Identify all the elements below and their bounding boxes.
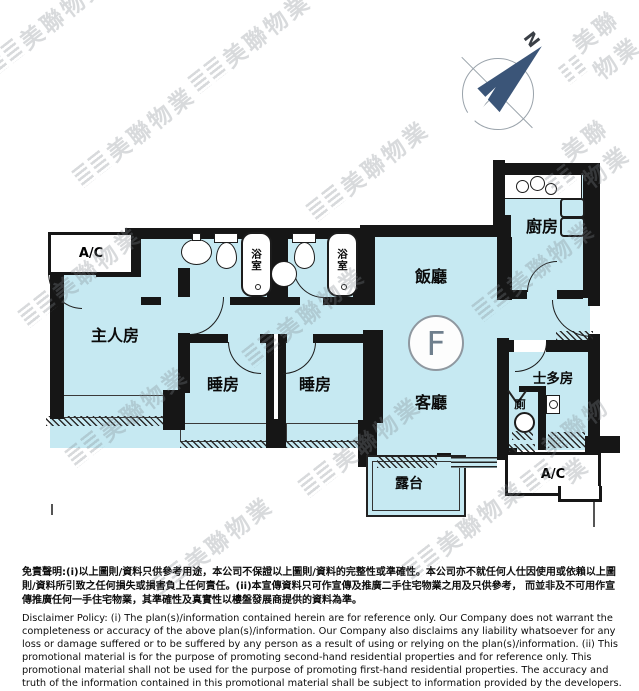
disclaimer-block: 免責聲明:(i)以上圖則/資料只供參考用途，本公司不保證以上圖則/資料的完整性或… [22,566,623,690]
toilet-window-hatch [509,444,535,452]
kitchen-appliance [560,198,585,218]
wall [323,297,353,305]
room-label-bedroom-left: 睡房 [207,371,239,395]
watermark-logo-icon [87,150,112,176]
wall [495,215,511,237]
wall [497,338,509,452]
wall [288,297,300,305]
ac-platform-top-left: A/C [48,232,134,275]
bathtub: 浴室 [327,232,358,297]
watermark: 美聯物業 [301,111,435,226]
bedroom2-bay-sill-hatch [286,440,364,448]
wall [141,297,161,305]
kitchen-appliance [560,217,585,237]
room-label-dining: 飯廳 [415,263,447,287]
unit-letter-badge: F [408,315,464,371]
bathtub-drain [341,284,347,290]
room-label-toilet: 廁 [512,398,528,411]
toilet-fixture [294,242,315,269]
bathtub-drain [255,284,261,290]
wall [178,334,228,343]
wall [497,340,514,352]
watermark-logo-icon [203,56,228,82]
bathroom-label: 浴室 [249,248,264,271]
wall [230,297,267,305]
wall [363,330,383,423]
master-bay-sill-hatch [46,416,171,426]
ac-platform-step [558,486,602,502]
toilet-base-hatch [512,431,533,440]
stove-burner [545,183,557,195]
plan-tick-mark [51,504,53,515]
sink [546,395,560,414]
watermark-logo-icon [568,54,587,76]
wall [497,290,527,299]
room-label-kitchen: 廚房 [526,213,558,237]
watermark-logo-icon [71,162,96,188]
wall [557,290,583,299]
watermark-logo-icon [557,62,576,84]
unit-letter: F [427,324,446,363]
wall [583,163,600,298]
watermark-logo-icon [313,460,338,486]
toilet-fixture [216,242,237,269]
wall [163,390,185,430]
sink-tap [192,233,201,241]
room-label-living: 客廳 [415,389,447,413]
disclaimer-english: Disclaimer Policy: (i) The plan(s)/infor… [22,612,623,691]
room-label-bedroom-right: 睡房 [299,371,331,395]
stove-burner [530,176,545,191]
watermark-logo-icon [0,38,24,64]
ac-label: A/C [79,246,103,261]
living-window-hatch [377,457,437,468]
wall [538,388,546,450]
wall [588,340,600,438]
wall [585,436,620,453]
watermark-logo-icon [0,50,9,76]
toilet-fixture [514,412,535,433]
watermark-logo-icon [297,472,322,498]
watermark: 美聯物業 [543,0,639,103]
floor-plan-page: A/C A/C 浴室 浴室 主人房 睡房 [0,0,639,691]
stove-burner [516,180,529,193]
watermark: 美聯物業 [183,0,317,99]
watermark: 美聯物業 [67,77,201,192]
bathtub: 浴室 [241,232,272,297]
watermark-logo-icon [321,184,346,210]
watermark: 美聯物業 [0,0,114,81]
disclaimer-chinese: 免責聲明:(i)以上圖則/資料只供參考用途，本公司不保證以上圖則/資料的完整性或… [22,566,623,609]
sink [271,261,297,287]
room-label-store: 士多房 [533,367,574,387]
room-label-balcony: 露台 [395,473,423,493]
sink-bowl [549,400,558,409]
wall [313,334,363,343]
watermark-logo-icon [17,302,42,328]
watermark-logo-icon [305,196,330,222]
wall [266,419,286,448]
bedroom1-bay-sill-hatch [180,440,266,448]
ac-label: A/C [541,467,565,482]
wall [360,225,510,237]
master-bay-window [50,395,167,418]
wall [178,268,190,297]
sink [181,239,212,265]
window-lines [451,457,497,468]
bathroom-label: 浴室 [335,248,350,271]
store-window-hatch [548,432,585,448]
room-label-master-bedroom: 主人房 [91,322,139,346]
compass: N [452,28,552,138]
watermark-logo-icon [187,68,212,94]
